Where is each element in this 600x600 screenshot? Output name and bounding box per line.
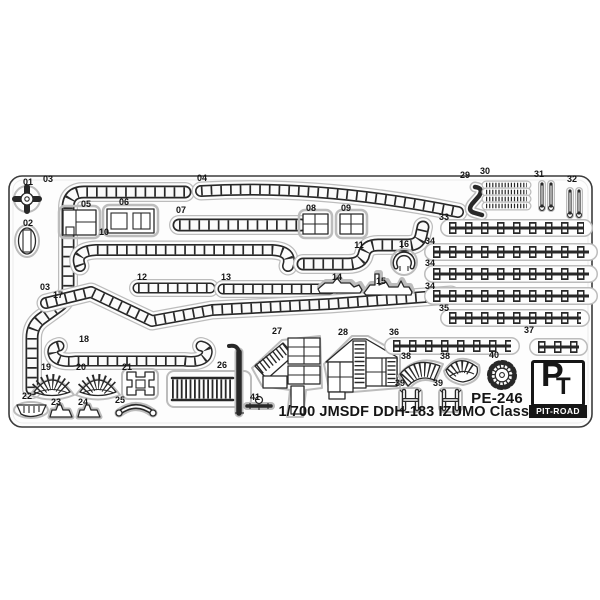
part-number-label: 09 <box>341 203 351 213</box>
part-number-label: 16 <box>399 239 409 249</box>
part-09-panel <box>336 210 367 238</box>
part-number-label: 18 <box>79 334 89 344</box>
part-05-panel <box>59 206 100 238</box>
part-number-label: 22 <box>22 391 32 401</box>
pit-road-wordmark: PIT-ROAD <box>529 405 587 418</box>
part-number-label: 29 <box>460 170 470 180</box>
part-number-label: 06 <box>119 197 129 207</box>
part-number-label: 02 <box>23 218 33 228</box>
part-number-label: 23 <box>51 397 61 407</box>
part-number-label: 03 <box>43 174 53 184</box>
part-number-label: 32 <box>567 174 577 184</box>
part-30-mesh <box>486 185 527 206</box>
monogram-t: T <box>556 375 571 399</box>
part-number-label: 27 <box>272 326 282 336</box>
part-number-label: 39 <box>395 378 405 388</box>
part-number-label: 20 <box>76 362 86 372</box>
part-number-label: 35 <box>439 303 449 313</box>
product-photo: 0102030304050607080910111213141516171819… <box>0 0 600 600</box>
part-number-label: 33 <box>439 212 449 222</box>
part-number-label: 11 <box>354 240 364 250</box>
part-number-label: 13 <box>221 272 231 282</box>
part-01 <box>14 186 40 212</box>
pit-road-monogram: P T <box>531 360 585 407</box>
part-number-label: 05 <box>81 199 91 209</box>
part-number-label: 40 <box>489 350 499 360</box>
part-number-label: 17 <box>53 290 63 300</box>
product-title: 1/700 JMSDF DDH-183 IZUMO Class <box>279 404 530 420</box>
part-number-label: 04 <box>197 173 207 183</box>
part-number-label: 41 <box>250 392 260 402</box>
part-number-label: 12 <box>137 272 147 282</box>
part-number-label: 39 <box>433 378 443 388</box>
part-02 <box>15 225 39 257</box>
part-number-label: 24 <box>78 397 88 407</box>
part-number-label: 21 <box>122 362 132 372</box>
part-number-label: 38 <box>440 351 450 361</box>
part-number-label: 19 <box>41 362 51 372</box>
part-number-label: 34 <box>425 236 435 246</box>
part-number-label: 03 <box>40 282 50 292</box>
part-number-label: 07 <box>176 205 186 215</box>
part-number-label: 10 <box>99 227 109 237</box>
part-number-label: 34 <box>425 258 435 268</box>
pit-road-logo: P T PIT-ROAD <box>529 360 587 418</box>
part-number-label: 15 <box>376 276 386 286</box>
part-number-label: 26 <box>217 360 227 370</box>
part-06-panel <box>103 205 158 236</box>
part-number-label: 14 <box>332 272 342 282</box>
part-29 <box>470 187 482 215</box>
part-number-label: 08 <box>306 203 316 213</box>
part-number-label: 38 <box>401 351 411 361</box>
part-number-label: 28 <box>338 327 348 337</box>
part-number-label: 30 <box>480 166 490 176</box>
part-number-label: 34 <box>425 281 435 291</box>
part-number-label: 36 <box>389 327 399 337</box>
part-number-label: 31 <box>534 169 544 179</box>
part-number-label: 01 <box>23 177 33 187</box>
photo-etch-sheet: 0102030304050607080910111213141516171819… <box>0 0 600 600</box>
part-22 <box>14 402 48 418</box>
part-number-label: 25 <box>115 395 125 405</box>
part-08-panel <box>299 210 332 238</box>
part-number-label: 37 <box>524 325 534 335</box>
